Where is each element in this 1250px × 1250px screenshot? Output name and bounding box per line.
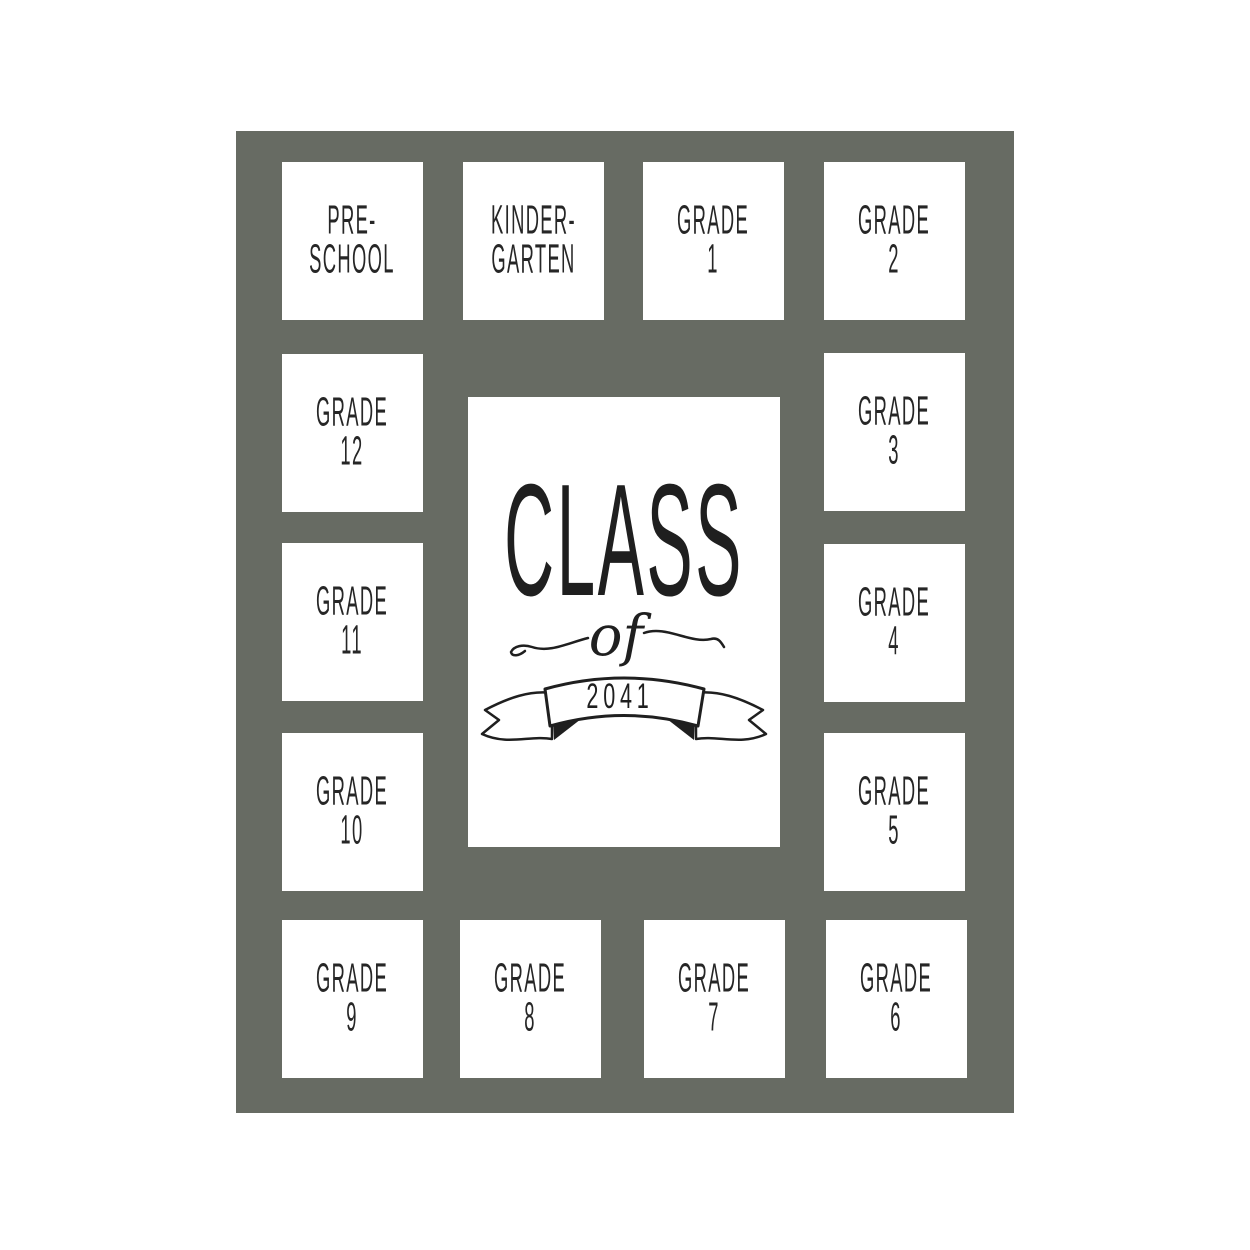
photo-opening-grade-8: GRADE 8 [460, 920, 601, 1078]
photo-opening-grade-9: GRADE 9 [282, 920, 423, 1078]
banner-tail-left [482, 692, 552, 739]
opening-label-grade-12: GRADE 12 [316, 395, 388, 472]
label-line-1: GRADE [860, 961, 932, 999]
center-title-opening: CLASS of 2041 [468, 397, 780, 847]
of-connector-text: of [589, 604, 653, 669]
label-line-1: PRE- [328, 203, 377, 241]
photo-opening-grade-5: GRADE 5 [824, 733, 965, 891]
opening-label-grade-6: GRADE 6 [860, 961, 932, 1038]
label-line-2: 6 [891, 999, 903, 1037]
label-line-2: 10 [341, 812, 364, 850]
label-line-1: GRADE [494, 961, 566, 999]
class-year-text: 2041 [586, 678, 653, 717]
photo-opening-grade-4: GRADE 4 [824, 544, 965, 702]
label-line-2: 2 [889, 241, 901, 279]
label-line-1: GRADE [858, 774, 930, 812]
photo-opening-grade-11: GRADE 11 [282, 543, 423, 701]
opening-label-grade-11: GRADE 11 [316, 584, 388, 661]
label-line-1: KINDER- [491, 203, 576, 241]
frame-mat: PRE- SCHOOL KINDER- GARTEN GRADE 1 GRADE… [236, 131, 1014, 1113]
label-line-1: GRADE [858, 585, 930, 623]
label-line-2: 5 [889, 812, 901, 850]
label-line-1: GRADE [858, 203, 930, 241]
opening-label-kindergarten: KINDER- GARTEN [491, 203, 576, 280]
of-flourish-right-icon [644, 631, 724, 647]
label-line-2: 9 [347, 999, 359, 1037]
photo-opening-grade-7: GRADE 7 [644, 920, 785, 1078]
label-line-2: 1 [708, 241, 720, 279]
opening-label-grade-2: GRADE 2 [858, 203, 930, 280]
opening-label-grade-5: GRADE 5 [858, 774, 930, 851]
photo-opening-grade-10: GRADE 10 [282, 733, 423, 891]
class-of-year-artwork: CLASS of 2041 [468, 397, 780, 847]
opening-label-preschool: PRE- SCHOOL [310, 203, 396, 280]
label-line-2: 7 [709, 999, 721, 1037]
label-line-1: GRADE [316, 961, 388, 999]
label-line-2: GARTEN [491, 241, 575, 279]
label-line-1: GRADE [316, 584, 388, 622]
photo-opening-grade-6: GRADE 6 [826, 920, 967, 1078]
label-line-2: 3 [889, 432, 901, 470]
photo-opening-grade-2: GRADE 2 [824, 162, 965, 320]
of-flourish-left-icon [511, 638, 588, 655]
photo-opening-preschool: PRE- SCHOOL [282, 162, 423, 320]
label-line-2: 4 [889, 623, 901, 661]
label-line-2: 12 [341, 433, 364, 471]
label-line-2: 8 [525, 999, 537, 1037]
opening-label-grade-9: GRADE 9 [316, 961, 388, 1038]
banner-tail-right [696, 692, 766, 739]
photo-opening-grade-12: GRADE 12 [282, 354, 423, 512]
label-line-1: GRADE [316, 395, 388, 433]
label-line-2: SCHOOL [310, 241, 396, 279]
label-line-1: GRADE [677, 203, 749, 241]
label-line-1: GRADE [316, 774, 388, 812]
opening-label-grade-3: GRADE 3 [858, 394, 930, 471]
label-line-2: 11 [342, 622, 364, 660]
opening-label-grade-1: GRADE 1 [677, 203, 749, 280]
photo-opening-grade-3: GRADE 3 [824, 353, 965, 511]
label-line-1: GRADE [678, 961, 750, 999]
opening-label-grade-4: GRADE 4 [858, 585, 930, 662]
label-line-1: GRADE [858, 394, 930, 432]
photo-opening-kindergarten: KINDER- GARTEN [463, 162, 604, 320]
photo-opening-grade-1: GRADE 1 [643, 162, 784, 320]
opening-label-grade-8: GRADE 8 [494, 961, 566, 1038]
opening-label-grade-7: GRADE 7 [678, 961, 750, 1038]
opening-label-grade-10: GRADE 10 [316, 774, 388, 851]
